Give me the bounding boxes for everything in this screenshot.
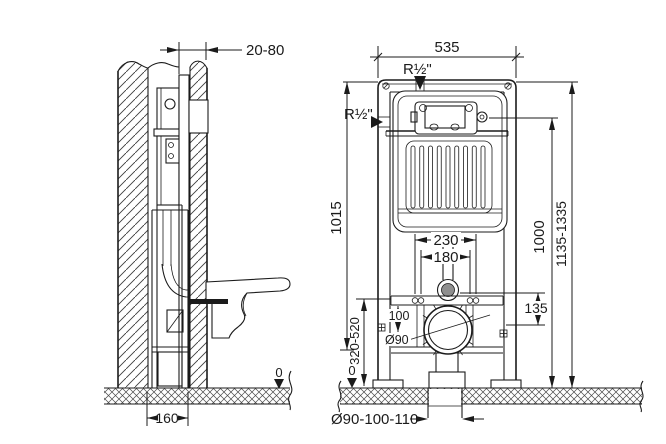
front-view: 535 R½" R½" 1015 320-520 [328, 39, 643, 428]
dim-label-bolts-outer: 230 [433, 232, 458, 249]
dim-wall-clearance: 20-80 [160, 42, 284, 74]
supply-fitting [477, 112, 487, 122]
outlet-diameter-label: Ø90 [384, 333, 411, 347]
dim-label-height-total: 1135-1335 [553, 201, 569, 267]
dim-label-height-flush-plate: 1000 [531, 220, 548, 253]
dim-label-outlet-height: 320-520 [347, 317, 362, 365]
bolt-hole [473, 298, 479, 304]
bolt-hole [467, 298, 473, 304]
floor-level-marker-front: 0 [347, 363, 357, 388]
bolt-hole [418, 298, 424, 304]
dim-label-bolts-inner: 180 [433, 249, 458, 266]
technical-drawing-canvas: 20-80 160 0 [0, 0, 666, 444]
floor-level-label-side: 0 [275, 365, 282, 380]
dim-label-supply-to-outlet: 135 [524, 300, 548, 316]
supply-label-side-text: R½" [344, 106, 373, 123]
flush-plate-mount [411, 102, 487, 134]
outlet-diameter-text: Ø90 [385, 333, 409, 347]
finishing-wall-hatched [189, 61, 208, 388]
drain-coupling [429, 372, 465, 388]
dim-label-wall-clearance: 20-80 [246, 42, 284, 59]
supply-label-side: R½" [344, 106, 383, 128]
dim-frame-width: 535 [370, 39, 524, 78]
flush-plate-housing-side [189, 100, 208, 133]
floor-level-label-front: 0 [348, 363, 355, 378]
floor-level-marker-side: 0 [274, 365, 284, 389]
foot-plate-right [491, 380, 521, 388]
side-view: 20-80 160 0 [104, 42, 292, 426]
fixing-rod [188, 299, 228, 304]
supply-label-top: R½" [403, 61, 432, 90]
dim-drain-pipe: Ø90-100-110 [331, 411, 484, 428]
dim-label-frame-depth: 160 [155, 410, 179, 426]
bolt-hole [412, 298, 418, 304]
technical-drawing-page: 20-80 160 0 [0, 0, 666, 444]
dim-label-frame-width: 535 [434, 39, 459, 56]
foot-plate-left [373, 380, 403, 388]
dim-label-height-frame: 1015 [328, 201, 345, 234]
niche-break-line [148, 63, 179, 68]
dim-label-drain-pipe: Ø90-100-110 [331, 411, 418, 428]
supply-label-top-text: R½" [403, 61, 432, 78]
dim-label-rail-to-outlet: 100 [389, 309, 410, 323]
